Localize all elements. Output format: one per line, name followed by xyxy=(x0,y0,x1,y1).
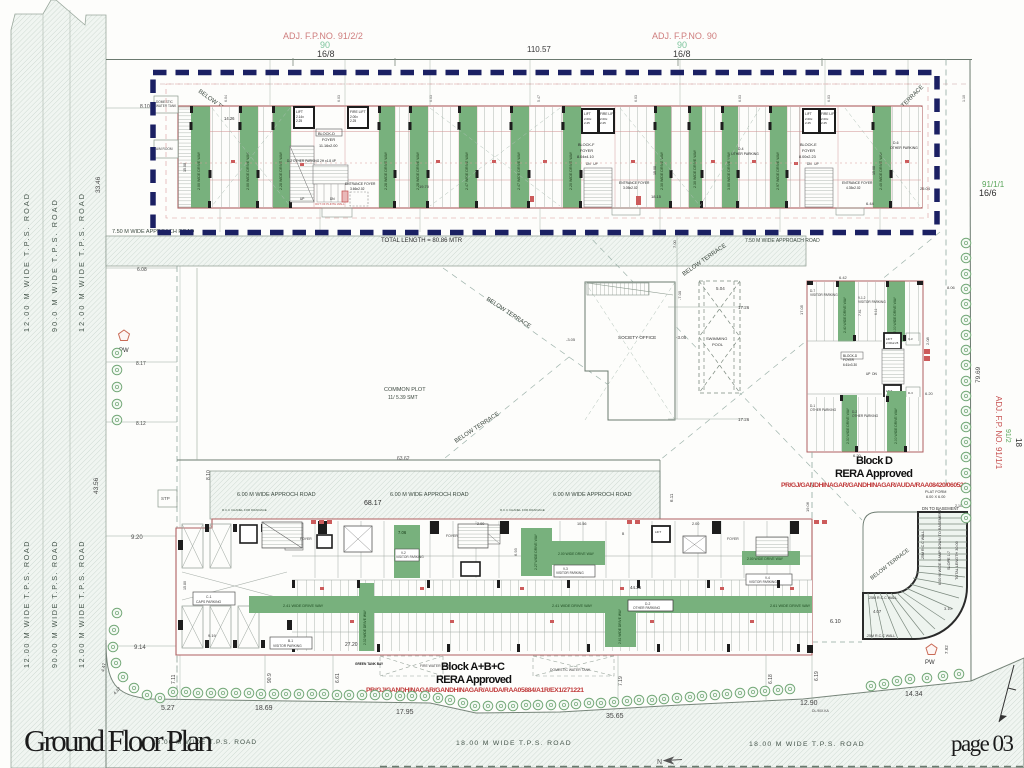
svg-text:2.28 WIDE DRIVE WAY: 2.28 WIDE DRIVE WAY xyxy=(384,151,388,190)
svg-text:5.27: 5.27 xyxy=(161,705,175,712)
svg-text:VISITOR PARKING: VISITOR PARKING xyxy=(810,293,838,297)
svg-text:90.00 M WIDE T.P.S. ROAD: 90.00 M WIDE T.P.S. ROAD xyxy=(50,540,59,668)
svg-text:PLAT FORM: PLAT FORM xyxy=(925,490,946,494)
svg-text:Ground Floor Plan: Ground Floor Plan xyxy=(24,723,214,758)
svg-text:11.16x2.00: 11.16x2.00 xyxy=(319,144,338,148)
svg-text:6.03: 6.03 xyxy=(634,95,638,102)
svg-text:44.26: 44.26 xyxy=(630,585,642,590)
svg-text:6.93: 6.93 xyxy=(513,547,518,556)
svg-text:R.C.C CHANEL FOR DRAINAGE: R.C.C CHANEL FOR DRAINAGE xyxy=(222,508,267,512)
svg-text:OTHER PARKING: OTHER PARKING xyxy=(852,414,879,418)
svg-text:3.10: 3.10 xyxy=(944,606,953,611)
svg-text:3.05x2.02: 3.05x2.02 xyxy=(623,186,638,190)
svg-text:BLOCK-F: BLOCK-F xyxy=(578,143,595,147)
svg-text:6.00 M WIDE RAMP DOWN TO BASEM: 6.00 M WIDE RAMP DOWN TO BASEMENT xyxy=(938,509,942,585)
svg-text:16/8: 16/8 xyxy=(317,49,335,59)
svg-text:TOTAL LENGTH 30.00: TOTAL LENGTH 30.00 xyxy=(955,541,959,580)
svg-text:BLOCK-E: BLOCK-E xyxy=(800,143,817,147)
svg-text:12.00 M WIDE T.P.S. ROAD: 12.00 M WIDE T.P.S. ROAD xyxy=(77,540,86,668)
svg-text:N: N xyxy=(657,759,662,766)
svg-text:12.00 M WIDE T.P.S. ROAD: 12.00 M WIDE T.P.S. ROAD xyxy=(22,192,31,332)
svg-text:OTHER PARKING: OTHER PARKING xyxy=(633,606,660,610)
svg-text:27.20: 27.20 xyxy=(345,642,358,648)
svg-text:BLOCK-D: BLOCK-D xyxy=(318,132,335,136)
svg-text:6.03: 6.03 xyxy=(429,95,433,102)
svg-text:2.25: 2.25 xyxy=(821,121,827,125)
svg-text:8.06: 8.06 xyxy=(947,285,956,290)
svg-text:12.90: 12.90 xyxy=(800,700,818,707)
svg-text:DN UP: DN UP xyxy=(807,162,819,166)
svg-text:2.00x2.25: 2.00x2.25 xyxy=(886,341,899,345)
svg-text:DL.90X.KA: DL.90X.KA xyxy=(812,709,830,713)
svg-text:12.00 M WIDE T.P.S. ROAD: 12.00 M WIDE T.P.S. ROAD xyxy=(22,540,31,668)
svg-text:2.28 WIDE DRIVE WAY: 2.28 WIDE DRIVE WAY xyxy=(279,151,283,190)
svg-text:4.35x2.02: 4.35x2.02 xyxy=(846,186,861,190)
svg-text:17.26: 17.26 xyxy=(738,305,750,310)
svg-text:FIRE LIFT: FIRE LIFT xyxy=(821,112,836,116)
svg-text:90.9: 90.9 xyxy=(267,673,273,683)
svg-text:LIFT: LIFT xyxy=(584,112,591,116)
svg-text:17.05: 17.05 xyxy=(799,304,804,315)
svg-text:OTHER PARKING: OTHER PARKING xyxy=(731,152,759,156)
svg-text:6.03: 6.03 xyxy=(827,95,831,102)
svg-text:16/6: 16/6 xyxy=(979,188,997,198)
svg-text:15.80: 15.80 xyxy=(183,581,187,590)
svg-text:2.00 WIDE DRIVE WAY: 2.00 WIDE DRIVE WAY xyxy=(894,407,898,444)
svg-text:2.00 WIDE DRIVE WAY: 2.00 WIDE DRIVE WAY xyxy=(893,296,897,333)
svg-text:14.34: 14.34 xyxy=(905,691,923,698)
svg-text:FOYER: FOYER xyxy=(446,534,458,538)
svg-text:D-6: D-6 xyxy=(893,141,899,145)
svg-text:110.57: 110.57 xyxy=(527,45,551,54)
svg-text:RERA Approved: RERA Approved xyxy=(436,674,512,686)
svg-text:2.41 WIDE DRIVE WAY: 2.41 WIDE DRIVE WAY xyxy=(283,604,324,608)
svg-text:90.0 M WIDE T.P.S. ROAD: 90.0 M WIDE T.P.S. ROAD xyxy=(50,198,59,332)
svg-text:VISITOR PARKING: VISITOR PARKING xyxy=(858,300,886,304)
svg-text:15.08: 15.08 xyxy=(872,166,876,175)
svg-text:1.10: 1.10 xyxy=(962,95,966,102)
svg-text:D-4: D-4 xyxy=(738,147,744,151)
svg-text:68.17: 68.17 xyxy=(364,500,382,507)
svg-text:D-3: D-3 xyxy=(908,391,913,395)
svg-text:6.61: 6.61 xyxy=(335,673,341,683)
svg-text:COMMON PLOT: COMMON PLOT xyxy=(384,387,426,393)
svg-text:WATER TANK: WATER TANK xyxy=(156,104,177,108)
svg-text:2.25: 2.25 xyxy=(600,121,606,125)
svg-text:GREEN TANK BAY: GREEN TANK BAY xyxy=(355,662,384,666)
svg-text:10.56: 10.56 xyxy=(577,522,587,526)
svg-text:SOCIETY OFFICE: SOCIETY OFFICE xyxy=(618,335,656,340)
svg-text:SWIMMING: SWIMMING xyxy=(706,336,727,341)
svg-text:7.50 M WIDE APPROACH ROAD: 7.50 M WIDE APPROACH ROAD xyxy=(745,238,820,244)
svg-text:ENTRANCE FOYER: ENTRANCE FOYER xyxy=(345,182,376,186)
svg-text:OTHER PARKING: OTHER PARKING xyxy=(810,408,837,412)
svg-text:7.00: 7.00 xyxy=(672,239,677,248)
svg-text:.25M R.C.C WALL: .25M R.C.C WALL xyxy=(921,531,925,560)
svg-text:6.10: 6.10 xyxy=(830,619,841,625)
svg-text:11/ 5.39 SMT: 11/ 5.39 SMT xyxy=(388,395,418,401)
svg-text:8.10: 8.10 xyxy=(206,470,212,480)
svg-text:6.44: 6.44 xyxy=(866,201,875,206)
svg-text:6.19: 6.19 xyxy=(814,671,820,681)
svg-text:6.11: 6.11 xyxy=(874,309,878,315)
svg-text:6.11: 6.11 xyxy=(669,493,674,502)
svg-text:-7.00: -7.00 xyxy=(677,290,682,300)
svg-text:DOMESTIC WATER TANK: DOMESTIC WATER TANK xyxy=(550,668,591,672)
svg-text:6.61x3.30: 6.61x3.30 xyxy=(843,363,857,367)
svg-text:VISITOR PARKING: VISITOR PARKING xyxy=(556,571,584,575)
svg-text:LIFT: LIFT xyxy=(805,112,812,116)
svg-text:FOYER: FOYER xyxy=(580,149,593,153)
svg-text:.25M R.C.C WALL: .25M R.C.C WALL xyxy=(866,634,895,638)
svg-text:91/2: 91/2 xyxy=(1004,429,1011,443)
svg-text:2.30 WIDE DRIVE WAY: 2.30 WIDE DRIVE WAY xyxy=(693,149,697,188)
svg-text:2.00 WIDE DRIVE WAY: 2.00 WIDE DRIVE WAY xyxy=(197,151,201,190)
svg-text:page 03: page 03 xyxy=(951,731,1014,756)
svg-text:CAPS PARKING: CAPS PARKING xyxy=(196,600,222,604)
svg-text:2.25: 2.25 xyxy=(296,119,302,123)
svg-text:VISITOR PARKING: VISITOR PARKING xyxy=(273,644,302,648)
svg-text:6.03: 6.03 xyxy=(337,95,341,102)
svg-text:DN UP: DN UP xyxy=(586,162,598,166)
svg-text:3.66x2.02: 3.66x2.02 xyxy=(350,187,365,191)
svg-text:2.40 WIDE DRIVE WAY: 2.40 WIDE DRIVE WAY xyxy=(843,296,847,333)
svg-text:7.06: 7.06 xyxy=(398,530,407,535)
svg-text:R.C.C CHANEL FOR DRAINAGE: R.C.C CHANEL FOR DRAINAGE xyxy=(500,508,545,512)
svg-text:6.18: 6.18 xyxy=(768,674,774,684)
svg-text:2.00 WIDE DRIVE WAY: 2.00 WIDE DRIVE WAY xyxy=(747,557,784,561)
svg-text:TOTAL LENGTH = 80.86 MTR: TOTAL LENGTH = 80.86 MTR xyxy=(381,238,463,244)
svg-text:2.30 WIDE DRIVE WAY: 2.30 WIDE DRIVE WAY xyxy=(660,151,664,190)
svg-text:Block D: Block D xyxy=(856,455,893,467)
svg-text:VISITOR PARKING: VISITOR PARKING xyxy=(749,580,777,584)
svg-text:9.19: 9.19 xyxy=(208,633,217,638)
svg-text:4.07: 4.07 xyxy=(873,609,882,614)
svg-text:2.27 WIDE DRIVE WAY: 2.27 WIDE DRIVE WAY xyxy=(534,533,538,570)
svg-text:FOYER: FOYER xyxy=(802,149,815,153)
svg-text:18.00 M WIDE T.P.S. ROAD: 18.00 M WIDE T.P.S. ROAD xyxy=(749,741,865,748)
svg-text:6.00 M WIDE APPROCH ROAD: 6.00 M WIDE APPROCH ROAD xyxy=(237,492,316,498)
svg-text:14.26: 14.26 xyxy=(224,116,235,121)
svg-text:2.00 WIDE DRIVE WAY: 2.00 WIDE DRIVE WAY xyxy=(246,151,250,190)
svg-text:5.47: 5.47 xyxy=(537,95,541,102)
svg-text:.25M R.C.C WALL: .25M R.C.C WALL xyxy=(868,596,897,600)
svg-text:2.32 WIDE DRIVE WAY: 2.32 WIDE DRIVE WAY xyxy=(363,609,367,645)
svg-text:18.15: 18.15 xyxy=(651,194,662,199)
svg-text:ENTRANCE FOYER: ENTRANCE FOYER xyxy=(842,181,873,185)
svg-text:VISITOR PARKING: VISITOR PARKING xyxy=(396,555,424,559)
svg-text:15.08: 15.08 xyxy=(653,166,657,175)
svg-text:FIRE LIFT: FIRE LIFT xyxy=(600,112,615,116)
svg-text:UP: UP xyxy=(300,197,304,201)
svg-text:FOYER: FOYER xyxy=(843,358,855,362)
svg-text:V-3: V-3 xyxy=(908,337,913,341)
svg-text:63.62: 63.62 xyxy=(397,456,410,462)
svg-text:5.04: 5.04 xyxy=(716,286,725,291)
svg-text:D-2 OTHER PARKING 2H x1.8 4P: D-2 OTHER PARKING 2H x1.8 4P xyxy=(287,159,336,163)
svg-text:FOYER: FOYER xyxy=(727,537,739,541)
svg-text:19.06: 19.06 xyxy=(805,501,810,512)
svg-text:6.04: 6.04 xyxy=(224,95,228,102)
svg-text:19.70: 19.70 xyxy=(419,184,430,189)
svg-text:LIFT: LIFT xyxy=(296,110,303,114)
svg-text:-3.05: -3.05 xyxy=(676,335,687,340)
svg-text:3.00 WIDE DRIVE WAY: 3.00 WIDE DRIVE WAY xyxy=(727,151,731,190)
svg-text:18.00 M WIDE T.P.S. ROAD: 18.00 M WIDE T.P.S. ROAD xyxy=(456,740,572,747)
svg-text:POOL: POOL xyxy=(712,342,724,347)
svg-text:OUT OF PLINTH WALL: OUT OF PLINTH WALL xyxy=(315,202,345,206)
svg-text:A/M ROOM: A/M ROOM xyxy=(156,147,173,151)
svg-text:6.20: 6.20 xyxy=(925,391,934,396)
svg-text:2.97 WIDE DRIVE WAY: 2.97 WIDE DRIVE WAY xyxy=(776,151,780,190)
svg-text:35.65: 35.65 xyxy=(606,713,624,720)
svg-text:7.92: 7.92 xyxy=(944,645,949,654)
svg-text:79.69: 79.69 xyxy=(975,366,982,383)
svg-text:DN: DN xyxy=(330,197,335,201)
svg-text:7.11: 7.11 xyxy=(171,674,177,684)
svg-text:6.03: 6.03 xyxy=(738,95,742,102)
svg-text:6.00 M WIDE APPROCH ROAD: 6.00 M WIDE APPROCH ROAD xyxy=(390,492,469,498)
svg-text:12.00 M WIDE T.P.S. ROAD: 12.00 M WIDE T.P.S. ROAD xyxy=(77,192,86,332)
svg-text:Block A+B+C: Block A+B+C xyxy=(441,661,505,673)
svg-text:FIRE LIFT: FIRE LIFT xyxy=(350,110,366,114)
svg-text:18: 18 xyxy=(1014,438,1023,447)
svg-text:2.25: 2.25 xyxy=(584,121,590,125)
svg-text:2.61 WIDE DRIVE WAY: 2.61 WIDE DRIVE WAY xyxy=(618,608,622,644)
svg-text:ENTRANCE FOYER: ENTRANCE FOYER xyxy=(619,181,650,185)
svg-text:LIFT: LIFT xyxy=(655,530,661,534)
svg-text:8.10: 8.10 xyxy=(140,104,150,110)
svg-text:7.19: 7.19 xyxy=(618,676,624,686)
svg-text:2.00 WIDE DRIVE WAY: 2.00 WIDE DRIVE WAY xyxy=(558,552,595,556)
svg-text:ADJ. F.P. NO. 91/1/1: ADJ. F.P. NO. 91/1/1 xyxy=(994,396,1003,470)
svg-text:FOYER: FOYER xyxy=(322,138,335,142)
svg-text:2.08: 2.08 xyxy=(925,336,930,345)
svg-text:33.46: 33.46 xyxy=(95,176,102,193)
svg-text:43.56: 43.56 xyxy=(93,477,100,494)
svg-text:SLOPE 1:7: SLOPE 1:7 xyxy=(947,551,951,570)
svg-text:8.04x4.10: 8.04x4.10 xyxy=(577,155,594,159)
svg-text:2.47 WIDE DRIVE WAY: 2.47 WIDE DRIVE WAY xyxy=(465,151,469,190)
svg-text:2.61 WIDE DRIVE WAY: 2.61 WIDE DRIVE WAY xyxy=(770,604,811,608)
svg-text:6.00 M WIDE APPROCH ROAD: 6.00 M WIDE APPROCH ROAD xyxy=(553,492,632,498)
svg-text:OTHER PARKING: OTHER PARKING xyxy=(890,146,918,150)
svg-text:2.25: 2.25 xyxy=(805,121,811,125)
svg-text:17.95: 17.95 xyxy=(396,709,414,716)
svg-text:18.69: 18.69 xyxy=(255,705,273,712)
svg-text:RERA Approved: RERA Approved xyxy=(835,468,913,480)
svg-text:2.20 WIDE DRIVE WAY: 2.20 WIDE DRIVE WAY xyxy=(569,151,573,190)
svg-text:PR/GJ/GANDHINAGAR/GANDHINAGAR/: PR/GJ/GANDHINAGAR/GANDHINAGAR/AUDA/RAA08… xyxy=(781,482,967,489)
svg-text:C-1: C-1 xyxy=(206,595,212,599)
svg-text:2.41 WIDE DRIVE WAY: 2.41 WIDE DRIVE WAY xyxy=(552,604,593,608)
svg-text:PW: PW xyxy=(925,660,935,666)
svg-text:8.00x2.23: 8.00x2.23 xyxy=(799,155,816,159)
svg-text:UP DN: UP DN xyxy=(866,372,878,376)
svg-text:15.08: 15.08 xyxy=(183,163,187,172)
svg-text:25.04: 25.04 xyxy=(920,186,931,191)
svg-text:FOYER: FOYER xyxy=(300,537,312,541)
svg-text:2.30 WIDE DRIVE WAY: 2.30 WIDE DRIVE WAY xyxy=(846,407,850,444)
svg-text:2.00: 2.00 xyxy=(692,522,699,526)
svg-text:16/8: 16/8 xyxy=(673,49,691,59)
svg-text:7.61: 7.61 xyxy=(858,309,862,316)
svg-text:-3.05: -3.05 xyxy=(566,337,576,342)
svg-text:2.47 WIDE DRIVE WAY: 2.47 WIDE DRIVE WAY xyxy=(517,151,521,190)
svg-text:6.42: 6.42 xyxy=(839,275,848,280)
svg-text:B-1: B-1 xyxy=(288,639,293,643)
svg-text:2.00: 2.00 xyxy=(477,522,484,526)
svg-text:17.26: 17.26 xyxy=(738,417,750,422)
svg-text:2.40 WIDE DRIVE WAY: 2.40 WIDE DRIVE WAY xyxy=(879,151,883,190)
svg-text:2.25: 2.25 xyxy=(350,119,356,123)
svg-text:6.00 X 6.00: 6.00 X 6.00 xyxy=(926,495,945,499)
svg-text:STP: STP xyxy=(161,496,170,501)
